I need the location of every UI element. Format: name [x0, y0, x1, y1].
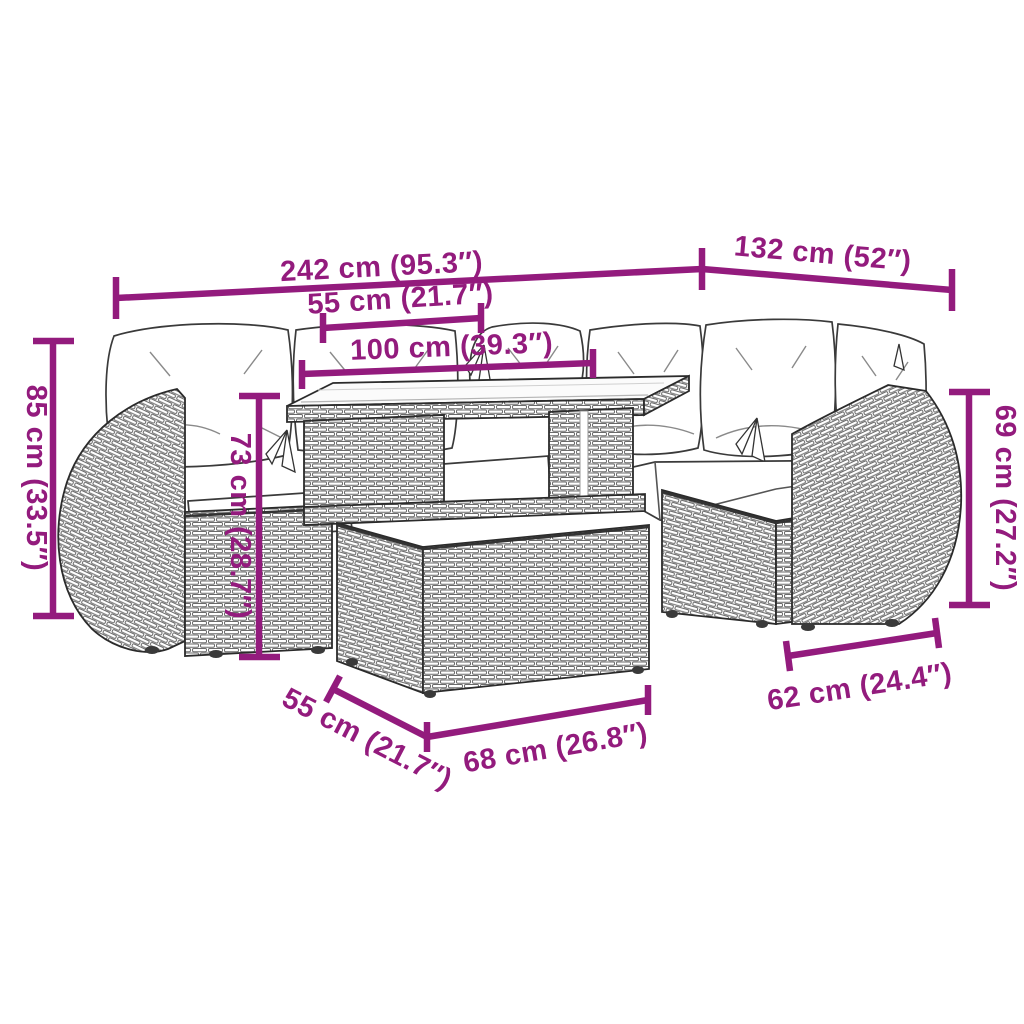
table-base-left-face [337, 523, 423, 693]
dimension-cap [786, 641, 790, 671]
table-base-front-face [423, 525, 649, 693]
dimension-label-overall-height: 85 cm (33.5″) [20, 385, 52, 571]
furniture-illustration [58, 319, 961, 698]
dimension-table-base-width: 68 cm (26.8″) [427, 685, 650, 779]
right-armrest [792, 385, 961, 624]
diagram-svg: 242 cm (95.3″) 132 cm (52″) 55 cm (21.7″… [0, 0, 1024, 1024]
left-armrest [58, 389, 185, 652]
dimension-line [788, 633, 937, 656]
dimension-cap [935, 618, 939, 648]
dimension-right-section-width: 132 cm (52″) [702, 230, 952, 311]
table [287, 376, 689, 698]
dimension-label-backrest-height: 69 cm (27.2″) [989, 405, 1021, 591]
table-left-column [304, 415, 444, 513]
dimension-line [702, 269, 952, 290]
dimension-seat-section-width: 62 cm (24.4″) [765, 618, 954, 717]
dimension-label-seat-section-width: 62 cm (24.4″) [765, 657, 954, 717]
table-right-column [549, 408, 633, 507]
product-dimension-diagram: 242 cm (95.3″) 132 cm (52″) 55 cm (21.7″… [0, 0, 1024, 1024]
dimension-label-table-height: 73 cm (28.7″) [224, 433, 256, 619]
